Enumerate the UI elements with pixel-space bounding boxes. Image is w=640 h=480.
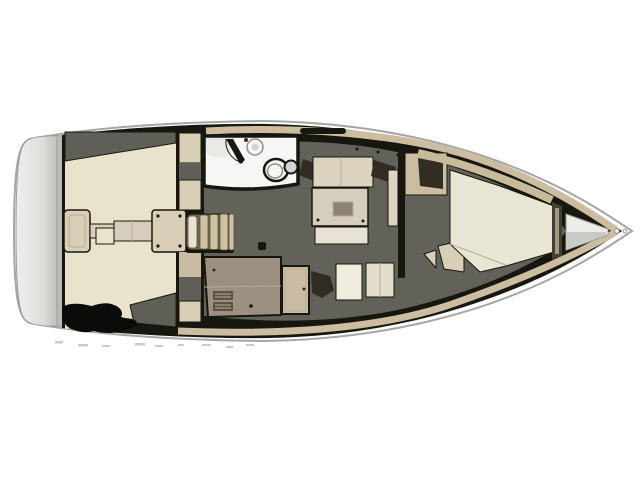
galley <box>204 257 281 317</box>
settee-bench <box>315 227 368 244</box>
artifact-marks <box>55 341 254 348</box>
hatch-dot <box>156 214 159 217</box>
step-slat <box>220 214 228 250</box>
faucet-dot <box>244 138 248 142</box>
table-leg-dot <box>362 220 365 223</box>
chart-table <box>336 264 362 300</box>
step-slat <box>210 215 218 250</box>
wardrobe-door-open <box>418 158 443 189</box>
bulkhead-low-beige <box>179 252 201 277</box>
helm-pedestal <box>64 210 90 252</box>
hatch-dot <box>178 244 181 247</box>
artifact-mark <box>226 346 233 348</box>
artifact-mark <box>55 341 63 344</box>
cockpit-table <box>114 221 152 241</box>
table-leg-dot <box>317 219 320 222</box>
deck-dot <box>356 148 359 151</box>
artifact-mark <box>178 344 184 346</box>
bow-bulkhead-trim <box>555 208 559 254</box>
bulkhead-patch <box>179 163 201 180</box>
bulkhead-mid <box>179 180 201 210</box>
mast-post <box>258 242 266 250</box>
settee-top-cushions <box>313 157 373 187</box>
artifact-mark <box>246 344 254 346</box>
table-inset <box>333 202 353 216</box>
bow-fitting <box>615 229 619 233</box>
step-top <box>188 216 197 248</box>
step-slat <box>229 214 234 250</box>
artifact-mark <box>102 345 110 347</box>
cockpit <box>64 132 186 329</box>
artifact-mark <box>135 343 145 346</box>
counter-dot <box>213 269 216 272</box>
deck-dot <box>397 154 400 157</box>
artifact-mark <box>78 344 88 347</box>
deck-dot <box>377 151 380 154</box>
head-compartment <box>204 136 298 189</box>
stove-burner <box>213 291 233 300</box>
swim-platform <box>16 136 63 327</box>
traveler-track <box>300 128 346 134</box>
boat-floor-plan-page <box>0 0 640 480</box>
stove-knob <box>249 304 253 308</box>
saloon-fwd-bulkhead <box>398 152 405 278</box>
step-slat <box>200 215 208 249</box>
bulkhead-low-char <box>179 277 201 301</box>
stove-burner <box>213 302 233 311</box>
swim-platform-shape <box>16 136 63 327</box>
settee-side-cushion <box>388 170 398 226</box>
bulkhead-bottom <box>179 301 201 322</box>
bulkhead-top <box>179 133 201 163</box>
table-leaf-small <box>96 228 114 244</box>
door-knob <box>303 288 306 291</box>
toilet-tank <box>285 161 298 174</box>
yacht-deck-plan-drawing <box>0 0 640 480</box>
artifact-mark <box>202 344 211 346</box>
artifact-mark <box>155 345 163 347</box>
hatch-dot <box>156 244 159 247</box>
hatch-dot <box>178 214 181 217</box>
companionway-steps <box>186 214 234 253</box>
sink-drain <box>252 144 259 151</box>
